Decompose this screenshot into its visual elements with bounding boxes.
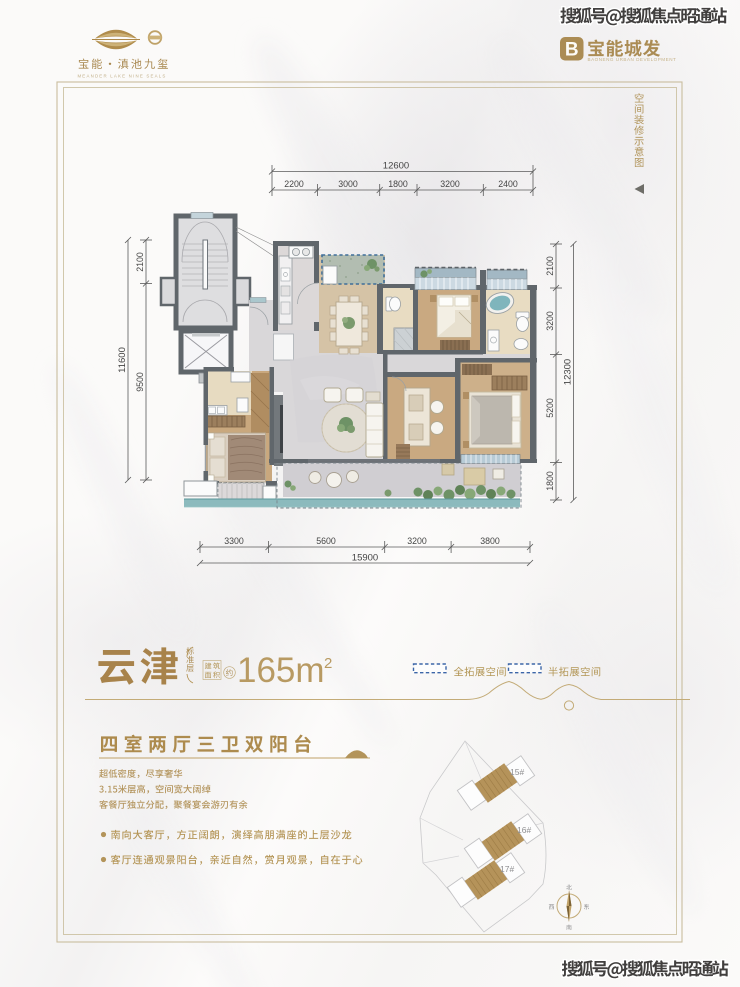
svg-text:5200: 5200 — [545, 398, 555, 418]
svg-text:3800: 3800 — [480, 536, 500, 546]
svg-text:3000: 3000 — [338, 179, 358, 189]
svg-text:3300: 3300 — [224, 536, 244, 546]
svg-text:17#: 17# — [500, 864, 514, 874]
svg-text:9500: 9500 — [135, 372, 145, 392]
svg-text:3200: 3200 — [440, 179, 460, 189]
svg-text:15900: 15900 — [352, 553, 378, 564]
svg-text:12600: 12600 — [383, 161, 409, 172]
svg-text:2400: 2400 — [498, 179, 518, 189]
svg-text:11600: 11600 — [117, 347, 128, 373]
svg-text:5600: 5600 — [316, 536, 336, 546]
svg-text:16#: 16# — [517, 825, 531, 835]
svg-text:BAONENG URBAN DEVELOPMENT: BAONENG URBAN DEVELOPMENT — [588, 57, 677, 62]
svg-text:165m: 165m — [237, 651, 325, 690]
svg-text:2: 2 — [324, 655, 332, 672]
svg-text:B: B — [565, 40, 579, 61]
svg-text:2200: 2200 — [284, 179, 304, 189]
svg-text:MEANDER LAKE NINE SEALS: MEANDER LAKE NINE SEALS — [77, 74, 166, 79]
svg-text:1800: 1800 — [388, 179, 408, 189]
svg-text:3200: 3200 — [407, 536, 427, 546]
svg-text:2100: 2100 — [545, 256, 555, 276]
svg-text:2100: 2100 — [135, 252, 145, 272]
svg-text:3200: 3200 — [545, 311, 555, 331]
svg-text:12300: 12300 — [563, 359, 574, 385]
svg-text:1800: 1800 — [545, 471, 555, 491]
svg-text:15#: 15# — [510, 767, 524, 777]
